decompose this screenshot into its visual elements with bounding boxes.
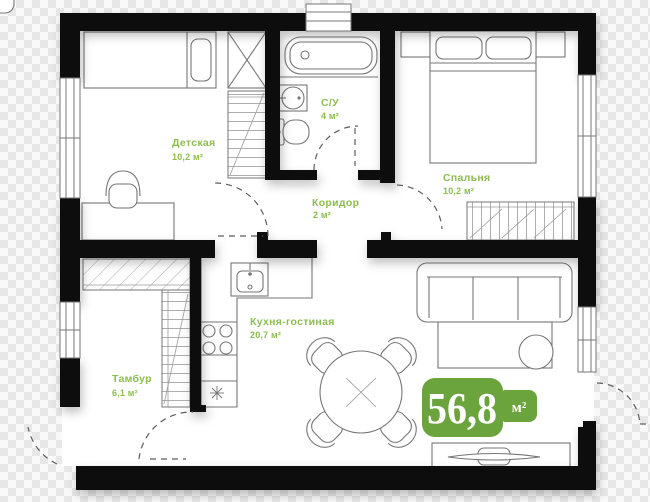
window-vestibule: [60, 302, 80, 358]
window-living: [578, 307, 596, 372]
vestibule-closet-side: [162, 290, 190, 407]
floorplan-svg: Детская 10,2 м² С/У 4 м² Коридор 2 м² Сп…: [0, 0, 650, 502]
window-bedroom: [578, 75, 596, 197]
room-area-corridor: 2 м²: [313, 210, 331, 220]
room-area-bathroom: 4 м²: [321, 111, 339, 121]
room-label-children: Детская: [172, 137, 215, 149]
double-bed: [430, 31, 536, 163]
badge-unit: м²: [512, 400, 527, 416]
floorplan-screenshot: Детская 10,2 м² С/У 4 м² Коридор 2 м² Сп…: [0, 0, 650, 502]
room-area-vestibule: 6,1 м²: [112, 388, 138, 398]
room-label-vestibule: Тамбур: [112, 373, 152, 385]
wardrobe-x: [228, 32, 266, 88]
room-area-children: 10,2 м²: [172, 152, 203, 162]
room-area-kitchen-living: 20,7 м²: [250, 330, 281, 340]
room-label-kitchen-living: Кухня-гостиная: [250, 316, 335, 328]
kitchen-sink: [231, 263, 268, 296]
nightstand-right: [536, 32, 565, 57]
shelf-closet: [228, 91, 266, 178]
window-children: [60, 78, 80, 198]
room-label-bedroom: Спальня: [443, 172, 490, 184]
vestibule-closet-top: [83, 259, 190, 290]
room-label-bathroom: С/У: [321, 97, 339, 109]
vent-shaft-window: [306, 4, 351, 31]
room-label-corridor: Коридор: [312, 197, 359, 209]
single-bed: [84, 32, 216, 88]
pouf: [519, 335, 553, 369]
nightstand-left: [401, 32, 430, 57]
appliance-symbol: [210, 386, 224, 400]
badge-value: 56,8: [427, 384, 497, 433]
bathtub: [285, 37, 377, 74]
room-area-bedroom: 10,2 м²: [443, 186, 474, 196]
sofa: [417, 263, 572, 322]
bathroom-sink: [279, 85, 307, 111]
tv-console: [432, 443, 570, 467]
bedroom-wardrobe: [467, 202, 574, 240]
